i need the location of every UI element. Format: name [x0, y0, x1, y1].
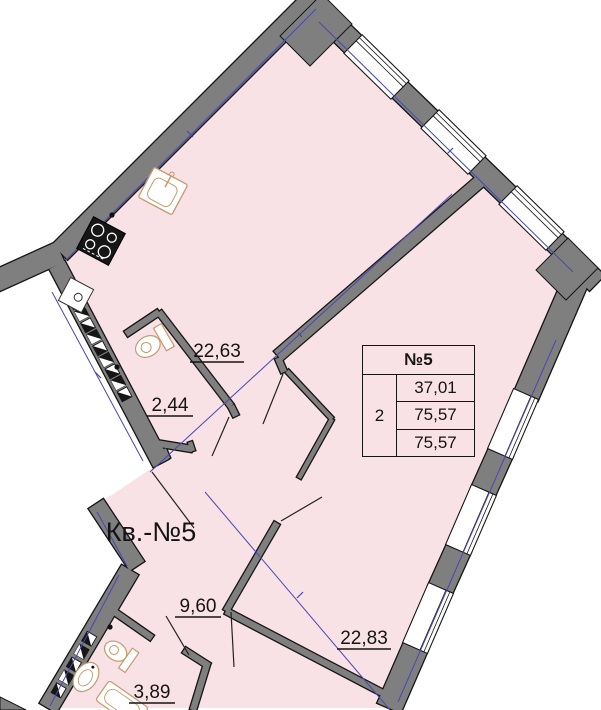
apartment-number-cell: №5 — [363, 346, 474, 375]
total-area-declared-cell: 75,57 — [397, 429, 474, 456]
outlet-dot — [114, 364, 119, 369]
room-area-label-bathroom: 3,89 — [134, 682, 171, 703]
room-area-label-hall: 9,60 — [180, 596, 217, 617]
floor-plan-drawing: 22,63 2,44 9,60 22,83 3,89 Кв.-№5 — [0, 0, 601, 710]
apartment-floor — [48, 0, 595, 708]
room-area-label-wc: 2,44 — [152, 395, 189, 416]
living-area-cell: 37,01 — [397, 375, 474, 401]
neighbor-wall-stub — [0, 697, 26, 710]
total-area-cell: 75,57 — [397, 401, 474, 428]
apartment-number-label: Кв.-№5 — [106, 517, 197, 547]
rooms-count-cell: 2 — [363, 375, 397, 456]
outlet-dot — [109, 212, 114, 217]
outlet-dot — [107, 624, 112, 629]
room-area-label-kitchen-living: 22,63 — [193, 341, 241, 362]
apartment-info-table: №5 2 37,01 75,57 75,57 — [362, 345, 475, 457]
room-area-label-bedroom: 22,83 — [340, 628, 388, 649]
floor-plan-page: 22,63 2,44 9,60 22,83 3,89 Кв.-№5 №5 2 3… — [0, 0, 601, 710]
